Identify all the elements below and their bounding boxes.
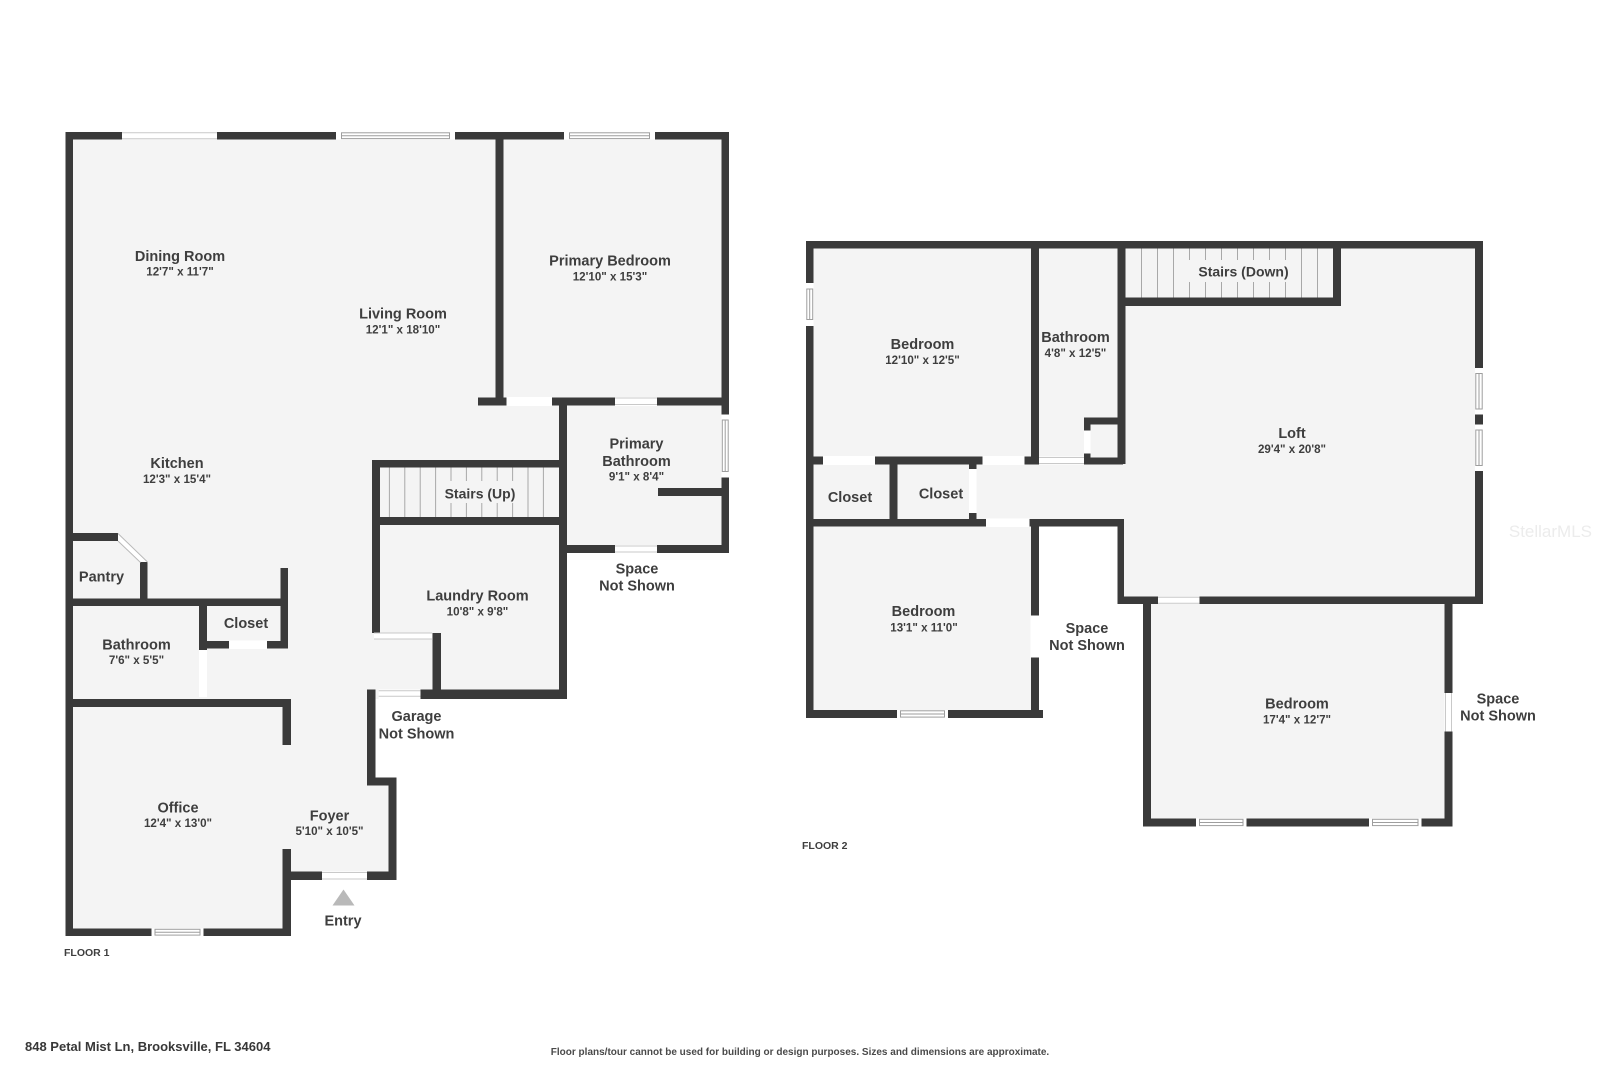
svg-text:Closet: Closet: [828, 490, 872, 506]
svg-text:Bathroom: Bathroom: [1041, 330, 1109, 346]
svg-text:Kitchen: Kitchen: [150, 456, 203, 472]
svg-text:Foyer: Foyer: [310, 809, 350, 825]
svg-text:9'1" x 8'4": 9'1" x 8'4": [609, 471, 664, 484]
svg-text:Floor plans/tour cannot be use: Floor plans/tour cannot be used for buil…: [551, 1047, 1050, 1058]
svg-text:Not Shown: Not Shown: [379, 727, 455, 743]
svg-text:Pantry: Pantry: [79, 570, 124, 586]
svg-text:Dining Room: Dining Room: [135, 249, 225, 265]
svg-text:Primary Bedroom: Primary Bedroom: [549, 254, 671, 270]
svg-text:Bedroom: Bedroom: [892, 604, 956, 620]
svg-text:StellarMLS: StellarMLS: [1509, 522, 1592, 541]
svg-text:4'8" x 12'5": 4'8" x 12'5": [1045, 347, 1107, 360]
svg-text:FLOOR 1: FLOOR 1: [64, 947, 110, 959]
svg-text:12'7" x 11'7": 12'7" x 11'7": [146, 266, 213, 279]
svg-text:12'1" x 18'10": 12'1" x 18'10": [366, 324, 441, 337]
svg-text:17'4" x 12'7": 17'4" x 12'7": [1263, 714, 1331, 727]
svg-text:Laundry Room: Laundry Room: [426, 589, 528, 605]
svg-text:12'10" x 15'3": 12'10" x 15'3": [573, 271, 648, 284]
svg-text:848 Petal Mist Ln, Brooksville: 848 Petal Mist Ln, Brooksville, FL 34604: [25, 1039, 271, 1054]
svg-text:29'4" x 20'8": 29'4" x 20'8": [1258, 443, 1326, 456]
svg-text:Stairs (Down): Stairs (Down): [1198, 264, 1288, 280]
svg-text:12'10" x 12'5": 12'10" x 12'5": [885, 354, 960, 367]
svg-text:Loft: Loft: [1278, 426, 1306, 442]
svg-text:FLOOR 2: FLOOR 2: [802, 840, 848, 852]
svg-text:Bathroom: Bathroom: [102, 638, 170, 654]
svg-text:Office: Office: [157, 801, 198, 817]
svg-text:Stairs (Up): Stairs (Up): [445, 486, 516, 502]
svg-text:Living Room: Living Room: [359, 307, 447, 323]
svg-text:Closet: Closet: [224, 616, 268, 632]
svg-text:Space: Space: [1477, 692, 1520, 708]
svg-text:Bedroom: Bedroom: [1265, 697, 1329, 713]
svg-text:Garage: Garage: [392, 709, 442, 725]
svg-text:10'8" x 9'8": 10'8" x 9'8": [447, 606, 509, 619]
svg-text:12'4" x 13'0": 12'4" x 13'0": [144, 817, 212, 830]
svg-text:Not Shown: Not Shown: [599, 579, 675, 595]
svg-text:Space: Space: [616, 562, 659, 578]
svg-text:Not Shown: Not Shown: [1460, 709, 1536, 725]
svg-text:Bedroom: Bedroom: [891, 337, 955, 353]
svg-text:5'10" x 10'5": 5'10" x 10'5": [295, 825, 363, 838]
svg-text:13'1" x 11'0": 13'1" x 11'0": [890, 622, 957, 635]
svg-text:Bathroom: Bathroom: [602, 454, 670, 470]
svg-text:Entry: Entry: [324, 914, 361, 930]
svg-text:Closet: Closet: [919, 487, 963, 503]
svg-text:Not Shown: Not Shown: [1049, 638, 1125, 654]
svg-text:7'6" x 5'5": 7'6" x 5'5": [109, 654, 164, 667]
svg-text:12'3" x 15'4": 12'3" x 15'4": [143, 473, 211, 486]
svg-text:Primary: Primary: [609, 437, 663, 453]
svg-text:Space: Space: [1066, 621, 1109, 637]
